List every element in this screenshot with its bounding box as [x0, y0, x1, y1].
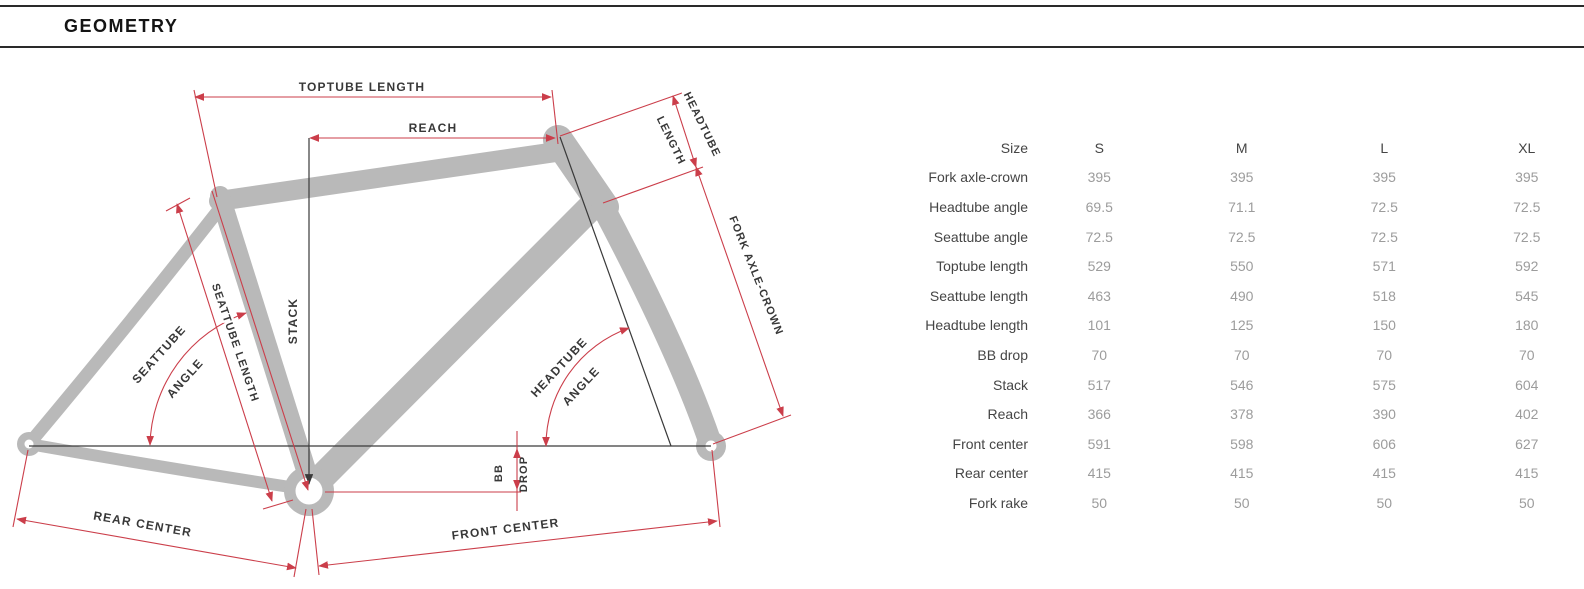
row-value: 70: [1456, 347, 1584, 363]
bb-v-line-left: [294, 509, 306, 577]
row-label: Rear center: [900, 465, 1028, 481]
headtube-ext-bottom: [603, 167, 703, 203]
row-value: 71.1: [1171, 199, 1314, 215]
row-value: 546: [1171, 377, 1314, 393]
row-value: 395: [1028, 169, 1171, 185]
row-value: 415: [1313, 465, 1456, 481]
row-value: 591: [1028, 436, 1171, 452]
row-value: 627: [1456, 436, 1584, 452]
row-value: 415: [1456, 465, 1584, 481]
row-value: 598: [1171, 436, 1314, 452]
headtube-length-label-line2: LENGTH: [654, 114, 688, 166]
seattube-angle-label-line2: ANGLE: [164, 356, 207, 401]
row-value: 490: [1171, 288, 1314, 304]
row-value: 415: [1028, 465, 1171, 481]
bb-v-line-right: [312, 509, 319, 575]
row-value: 72.5: [1456, 229, 1584, 245]
row-value: 606: [1313, 436, 1456, 452]
row-label: Headtube angle: [900, 199, 1028, 215]
geometry-table: SizeSMLXLFork axle-crown395395395395Head…: [900, 133, 1584, 518]
size-column-header: XL: [1456, 140, 1584, 156]
row-label: Seattube length: [900, 288, 1028, 304]
row-value: 180: [1456, 317, 1584, 333]
row-value: 550: [1171, 258, 1314, 274]
headtube-angle-label-line2: ANGLE: [560, 364, 603, 409]
fork-axle-crown-label: FORK AXLE-CROWN: [726, 214, 785, 337]
row-value: 72.5: [1313, 229, 1456, 245]
bike-frame-silhouette: [17, 140, 726, 516]
row-value: 72.5: [1313, 199, 1456, 215]
row-value: 50: [1456, 495, 1584, 511]
row-value: 72.5: [1028, 229, 1171, 245]
row-value: 366: [1028, 406, 1171, 422]
row-label: Toptube length: [900, 258, 1028, 274]
row-label: Fork axle-crown: [900, 169, 1028, 185]
row-value: 518: [1313, 288, 1456, 304]
row-label: Front center: [900, 436, 1028, 452]
fork-axle-crown-ext: [713, 415, 791, 444]
row-value: 604: [1456, 377, 1584, 393]
stack-label: STACK: [286, 298, 300, 344]
row-value: 69.5: [1028, 199, 1171, 215]
seattube-length-tick-top: [166, 198, 190, 211]
row-value: 395: [1313, 169, 1456, 185]
row-value: 50: [1171, 495, 1314, 511]
row-value: 529: [1028, 258, 1171, 274]
front-center-label: FRONT CENTER: [451, 515, 560, 542]
row-value: 517: [1028, 377, 1171, 393]
row-value: 390: [1313, 406, 1456, 422]
row-label: Seattube angle: [900, 229, 1028, 245]
seattube-length-dim-line: [177, 204, 272, 501]
row-value: 70: [1171, 347, 1314, 363]
size-column-header: M: [1171, 140, 1314, 156]
front-center-ext: [712, 450, 720, 527]
row-value: 545: [1456, 288, 1584, 304]
row-label: BB drop: [900, 347, 1028, 363]
reach-label: REACH: [409, 121, 458, 135]
row-value: 70: [1028, 347, 1171, 363]
size-column-header: L: [1313, 140, 1456, 156]
bb-drop-label-line1: BB: [493, 464, 505, 482]
toptube-ext-left: [194, 90, 217, 197]
row-label: Headtube length: [900, 317, 1028, 333]
row-value: 72.5: [1171, 229, 1314, 245]
toptube-length-label: TOPTUBE LENGTH: [299, 80, 426, 94]
row-value: 571: [1313, 258, 1456, 274]
geometry-page: GEOMETRY: [0, 0, 1584, 589]
row-label: Reach: [900, 406, 1028, 422]
toptube-shape: [219, 152, 556, 201]
row-value: 395: [1456, 169, 1584, 185]
row-value: 70: [1313, 347, 1456, 363]
row-value: 463: [1028, 288, 1171, 304]
rear-center-ext: [13, 450, 28, 527]
bb-drop-label-line2: DROP: [518, 456, 530, 493]
row-value: 101: [1028, 317, 1171, 333]
chainstay-tube: [29, 444, 303, 489]
row-value: 150: [1313, 317, 1456, 333]
frame-geometry-diagram: TOPTUBE LENGTH REACH HEADTUBE LENGTH FOR…: [0, 0, 890, 589]
row-value: 415: [1171, 465, 1314, 481]
row-label: Stack: [900, 377, 1028, 393]
row-value: 395: [1171, 169, 1314, 185]
row-value: 72.5: [1456, 199, 1584, 215]
row-value: 50: [1028, 495, 1171, 511]
row-value: 402: [1456, 406, 1584, 422]
rear-axle-hole: [25, 440, 34, 449]
row-label: Fork rake: [900, 495, 1028, 511]
row-value: 378: [1171, 406, 1314, 422]
row-value: 125: [1171, 317, 1314, 333]
fork-axle-crown-dim-line: [696, 167, 783, 416]
size-column-header: S: [1028, 140, 1171, 156]
row-value: 575: [1313, 377, 1456, 393]
headtube-length-label-line1: HEADTUBE: [681, 90, 723, 159]
row-value: 592: [1456, 258, 1584, 274]
size-header-label: Size: [900, 140, 1028, 156]
row-value: 50: [1313, 495, 1456, 511]
seatstay-tube: [29, 207, 221, 444]
downtube-shape: [312, 201, 597, 487]
